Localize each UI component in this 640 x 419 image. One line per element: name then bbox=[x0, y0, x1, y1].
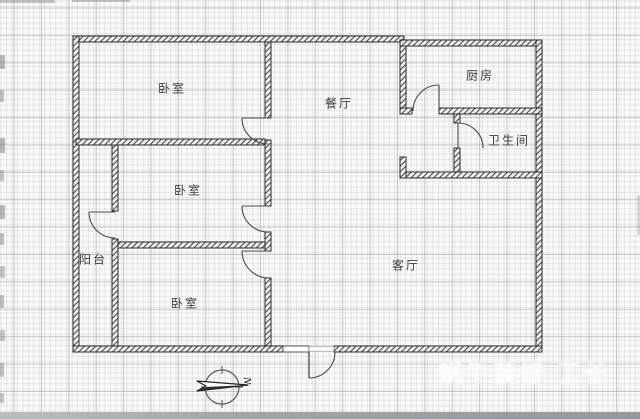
wall-bathroom-left-seg1 bbox=[454, 114, 460, 123]
scan-bottom-band bbox=[0, 412, 640, 419]
door-kitchen bbox=[413, 85, 439, 111]
wall-kitchen-left bbox=[400, 46, 406, 114]
door-bedroom-bottom bbox=[242, 251, 268, 278]
room-label-kitchen: 厨房 bbox=[466, 67, 494, 84]
room-label-balcony: 阳台 bbox=[79, 251, 107, 268]
wall-balcony-divider-seg2 bbox=[112, 239, 118, 346]
wall-kitchen-bottom-seg1 bbox=[400, 108, 412, 114]
wall-central-seg2 bbox=[265, 140, 271, 206]
wall-bathroom-left-seg2 bbox=[454, 148, 460, 172]
wall-central-seg1 bbox=[265, 42, 271, 118]
room-label-dining-room: 餐厅 bbox=[325, 95, 353, 112]
wall-balcony-divider-seg1 bbox=[112, 145, 118, 211]
door-bedroom-middle bbox=[242, 206, 268, 232]
wall-kitchen-bottom-seg2 bbox=[439, 108, 542, 114]
north-compass: N bbox=[197, 366, 253, 408]
wall-outer-bottom-left bbox=[73, 346, 283, 352]
wall-outer-top bbox=[73, 36, 404, 42]
watermark: 蜗牛装修-工长 bbox=[438, 354, 628, 390]
wall-bedroom-top-bottom bbox=[76, 139, 265, 145]
door-balcony bbox=[89, 212, 115, 238]
room-label-bedroom-middle: 卧室 bbox=[174, 182, 202, 199]
room-label-bedroom-top: 卧室 bbox=[158, 80, 186, 97]
room-label-bathroom: 卫生间 bbox=[488, 132, 530, 149]
door-bathroom bbox=[458, 123, 483, 148]
wall-bedrooms-divider bbox=[118, 242, 265, 248]
wall-bathroom-bottom bbox=[400, 172, 542, 178]
room-label-living-room: 客厅 bbox=[392, 257, 420, 274]
wall-central-seg4 bbox=[265, 278, 271, 346]
wall-outer-top-kitchen bbox=[400, 40, 542, 46]
wall-outer-bottom-right bbox=[334, 346, 542, 352]
wall-dining-stub bbox=[400, 157, 406, 178]
door-entrance bbox=[283, 346, 335, 378]
room-label-bedroom-bottom: 卧室 bbox=[171, 295, 199, 312]
floor-plan-page: N 卧室 餐厅 厨房 卫生间 卧室 阳台 卧室 客厅 蜗牛装修-工长 bbox=[0, 0, 640, 419]
wall-outer-left bbox=[73, 36, 79, 352]
wall-outer-right bbox=[536, 40, 542, 352]
wall-central-seg3 bbox=[265, 232, 271, 251]
compass-north-letter: N bbox=[241, 376, 253, 385]
